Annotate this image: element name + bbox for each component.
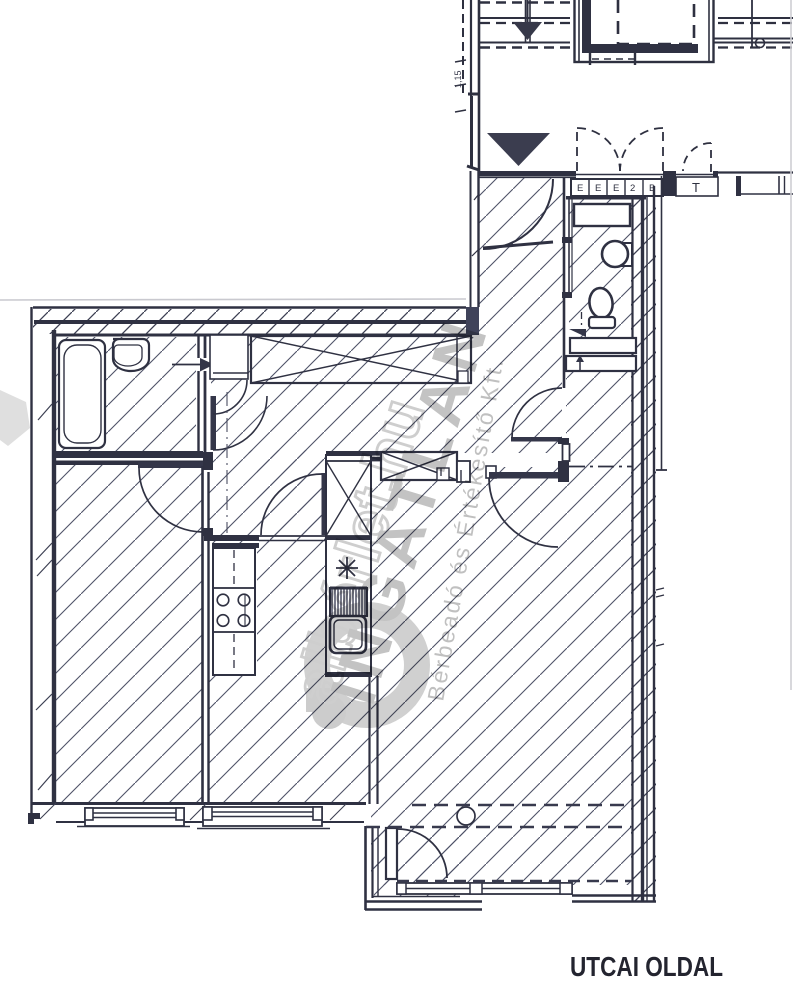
svg-text:E: E [595,183,601,194]
svg-text:T: T [692,180,700,195]
svg-text:E: E [577,183,583,194]
svg-text:2: 2 [630,183,635,194]
svg-text:1,15: 1,15 [453,70,463,88]
svg-text:E: E [613,183,619,194]
svg-text:UTCAI OLDAL: UTCAI OLDAL [570,951,723,982]
